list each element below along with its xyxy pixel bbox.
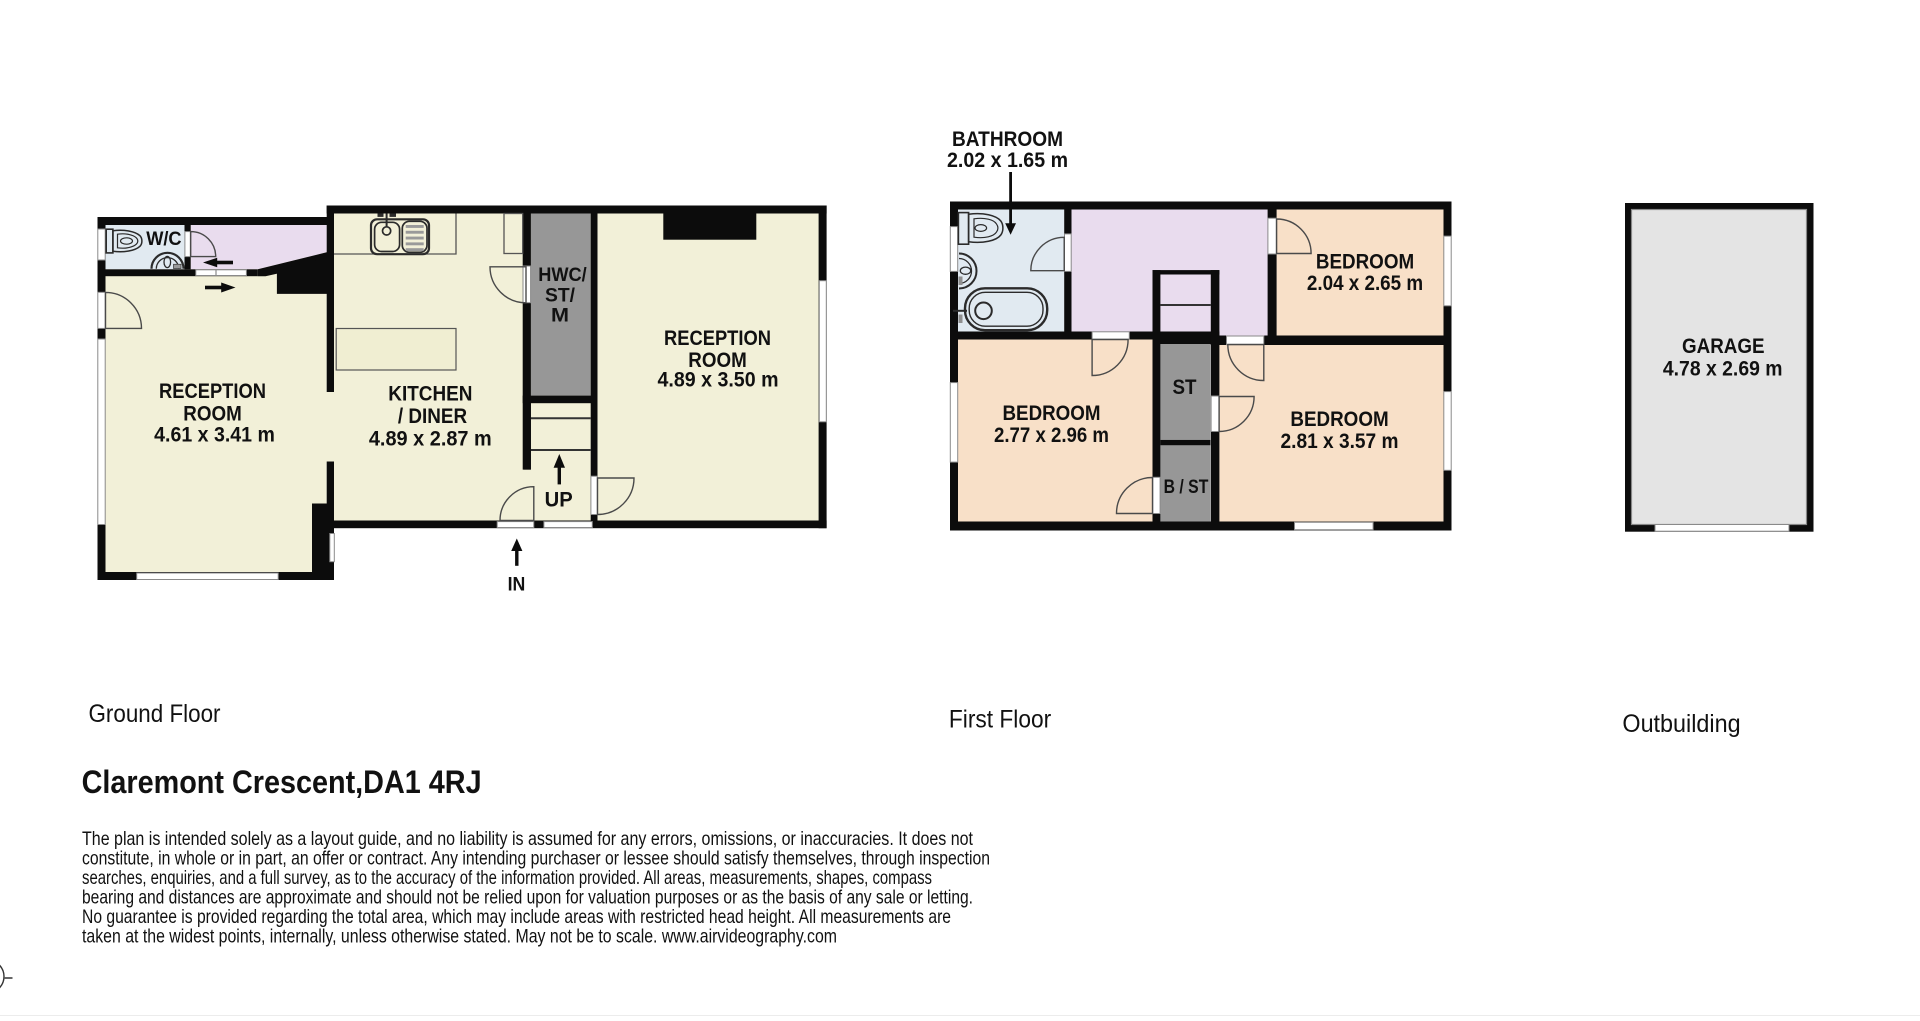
svg-text:2.02 x 1.65 m: 2.02 x 1.65 m [947,148,1068,172]
svg-text:4.89 x 3.50 m: 4.89 x 3.50 m [658,368,779,392]
svg-text:4.78 x 2.69 m: 4.78 x 2.69 m [1663,356,1783,380]
svg-text:/ DINER: / DINER [398,404,468,428]
svg-text:Ground Floor: Ground Floor [89,700,221,728]
svg-text:W/C: W/C [146,228,181,250]
svg-text:4.89 x 2.87 m: 4.89 x 2.87 m [369,427,492,451]
svg-text:ST: ST [1173,375,1197,399]
svg-text:B / ST: B / ST [1164,476,1209,498]
svg-text:M: M [551,305,569,327]
svg-text:2.81 x 3.57 m: 2.81 x 3.57 m [1281,429,1399,453]
svg-text:RECEPTION: RECEPTION [159,379,266,403]
svg-text:2.77 x 2.96 m: 2.77 x 2.96 m [994,423,1109,447]
svg-text:2.04 x 2.65 m: 2.04 x 2.65 m [1307,271,1423,295]
svg-text:RECEPTION: RECEPTION [664,326,771,350]
svg-text:BEDROOM: BEDROOM [1290,407,1388,431]
svg-text:IN: IN [508,574,526,596]
svg-text:ST/: ST/ [545,284,576,306]
svg-text:taken at the widest points, in: taken at the widest points, internally, … [82,926,837,948]
svg-text:BEDROOM: BEDROOM [1003,401,1101,425]
svg-text:BEDROOM: BEDROOM [1316,249,1414,273]
svg-text:GARAGE: GARAGE [1682,334,1765,358]
svg-text:First Floor: First Floor [949,706,1051,734]
svg-text:HWC/: HWC/ [538,264,587,286]
svg-text:Outbuilding: Outbuilding [1622,710,1740,738]
svg-text:UP: UP [545,487,573,511]
svg-text:4.61 x 3.41 m: 4.61 x 3.41 m [154,422,275,446]
svg-text:KITCHEN: KITCHEN [388,382,472,406]
svg-text:Claremont Crescent,DA1 4RJ: Claremont Crescent,DA1 4RJ [82,764,482,800]
